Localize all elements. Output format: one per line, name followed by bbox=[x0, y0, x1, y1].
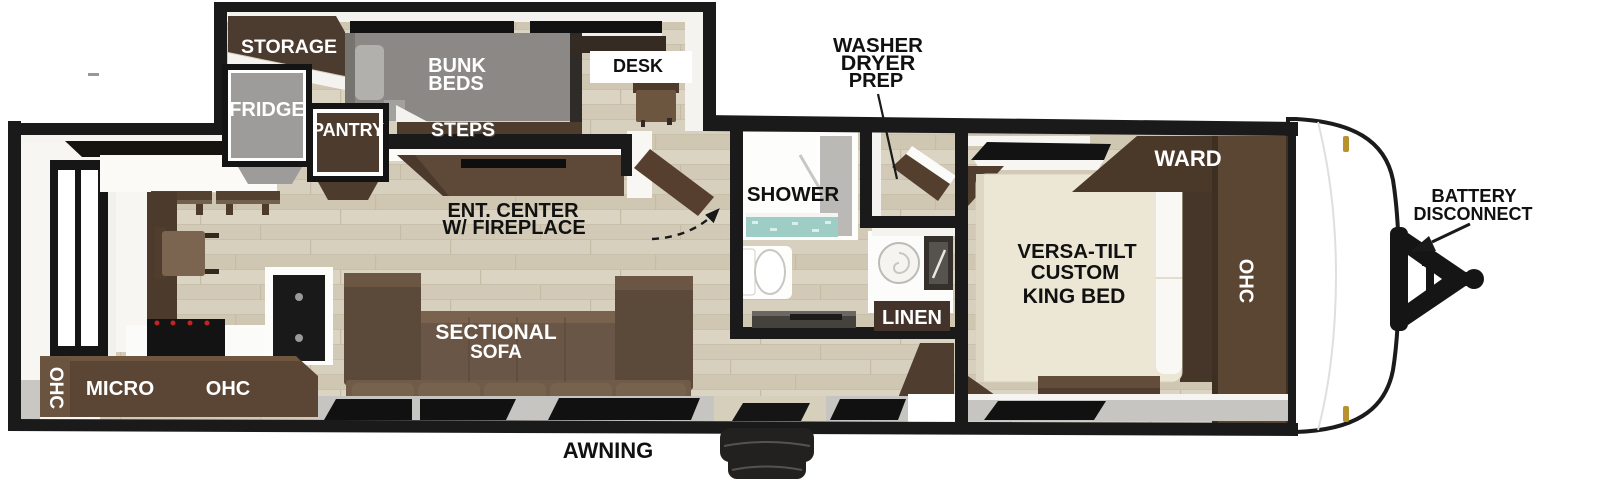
svg-text:WARD: WARD bbox=[1154, 146, 1221, 171]
svg-text:SOFA: SOFA bbox=[470, 342, 522, 363]
svg-text:PREP: PREP bbox=[849, 70, 903, 92]
svg-text:VERSA-TILT: VERSA-TILT bbox=[1017, 240, 1137, 263]
svg-text:FRIDGE: FRIDGE bbox=[229, 99, 305, 121]
svg-text:W/ FIREPLACE: W/ FIREPLACE bbox=[442, 217, 585, 239]
svg-text:LINEN: LINEN bbox=[882, 307, 942, 329]
svg-text:CUSTOM: CUSTOM bbox=[1031, 261, 1119, 284]
svg-text:STEPS: STEPS bbox=[431, 119, 495, 141]
svg-text:MICRO: MICRO bbox=[86, 377, 154, 400]
svg-text:BEDS: BEDS bbox=[428, 73, 484, 95]
svg-text:KING BED: KING BED bbox=[1023, 285, 1126, 308]
svg-text:OHC: OHC bbox=[1235, 259, 1257, 303]
svg-text:OHC: OHC bbox=[45, 367, 66, 410]
svg-text:DISCONNECT: DISCONNECT bbox=[1413, 204, 1532, 224]
svg-text:PANTRY: PANTRY bbox=[312, 120, 384, 140]
svg-text:SECTIONAL: SECTIONAL bbox=[435, 321, 557, 344]
svg-text:SHOWER: SHOWER bbox=[747, 183, 839, 206]
svg-text:OHC: OHC bbox=[206, 378, 250, 400]
svg-text:STORAGE: STORAGE bbox=[241, 36, 337, 58]
svg-text:BATTERY: BATTERY bbox=[1431, 185, 1517, 206]
svg-text:DESK: DESK bbox=[613, 56, 663, 76]
svg-text:AWNING: AWNING bbox=[563, 438, 653, 463]
